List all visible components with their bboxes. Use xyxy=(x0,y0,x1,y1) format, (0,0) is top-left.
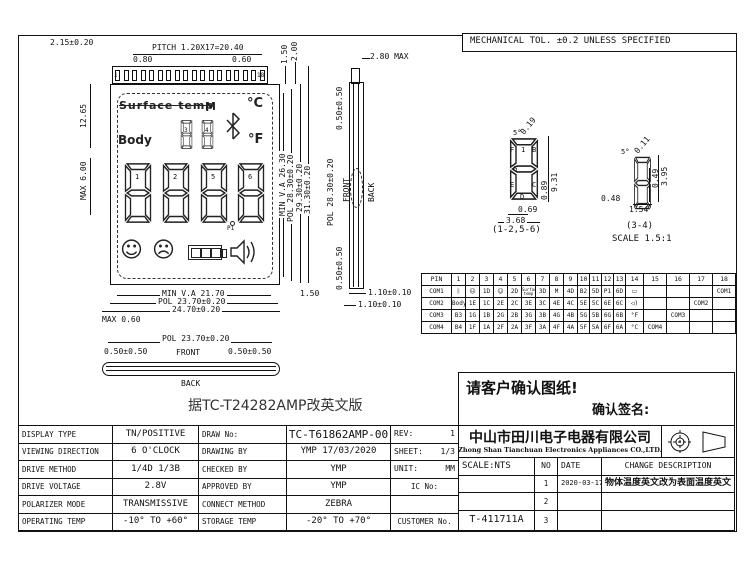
surface-temp-text: Surface temp xyxy=(119,99,214,112)
tb-value: YMP xyxy=(286,460,391,479)
kv: SHEET:1/3 xyxy=(394,448,455,456)
pin-cell xyxy=(644,286,667,298)
connector-pad xyxy=(166,70,171,81)
tb-rev-label: REV: xyxy=(394,430,413,438)
pin-cell: B4 xyxy=(452,322,466,334)
pin-cell: 11 xyxy=(590,274,602,286)
rev-no-cell: 2 xyxy=(534,492,558,511)
segment-letter: 1 xyxy=(521,147,525,155)
connector-pad xyxy=(132,70,137,81)
detail-big-caption: (1-2,5-6) xyxy=(492,226,541,236)
tb-icno-label: IC No: xyxy=(411,483,438,491)
pin-cell: 4C xyxy=(564,298,578,310)
element: PIN123456789101112131415161718COM1ᛒ☹1D☺2… xyxy=(422,274,736,334)
big-digit-6-id: 6 xyxy=(248,173,252,181)
element xyxy=(703,432,725,452)
battery-cell xyxy=(201,248,211,258)
dim-label: 1.50 xyxy=(281,45,290,64)
pin-cell xyxy=(713,310,736,322)
dim-label: 5° xyxy=(621,149,629,157)
dim-label: POL 28.30±0.20 xyxy=(327,159,336,226)
big-digit-2-id: 2 xyxy=(173,173,177,181)
bottom-view-bar xyxy=(102,362,280,376)
dim-label: 24.70±0.20 xyxy=(170,306,222,315)
pin-cell: 3C xyxy=(536,298,550,310)
tb-label: APPROVED BY xyxy=(198,478,287,496)
pin-cell: 5 xyxy=(508,274,522,286)
pin-cell xyxy=(690,286,713,298)
pin-cell: 4D xyxy=(564,286,578,298)
tb-label: CONNECT METHOD xyxy=(198,495,287,514)
tb-sheet-label: SHEET: xyxy=(394,448,423,456)
pin-cell: Body xyxy=(452,298,466,310)
connector-pad xyxy=(243,70,248,81)
pin-cell: 1C xyxy=(480,298,494,310)
pin-cell: 6F xyxy=(602,322,614,334)
pin-cell xyxy=(690,322,713,334)
small-digit-3-id: 3 xyxy=(184,127,188,134)
pin-cell: ☺ xyxy=(494,286,508,298)
company-name-cn: 中山市田川电子电器有限公司 xyxy=(469,430,651,447)
pin-cell: 3D xyxy=(536,286,550,298)
connector-pad xyxy=(234,70,239,81)
segment-letter: C xyxy=(532,182,536,190)
company-name-cell: 中山市田川电子电器有限公司 Zhong Shan Tianchuan Elect… xyxy=(458,425,662,458)
bluetooth-icon xyxy=(224,112,242,140)
pin-cell: 14 xyxy=(626,274,644,286)
scale-cell: SCALE:NTS xyxy=(458,457,535,476)
pin-cell: 4E xyxy=(550,298,564,310)
pin-cell: 3E xyxy=(522,298,536,310)
connector-pad xyxy=(124,70,129,81)
pin-cell: 6C xyxy=(614,298,626,310)
pin-cell: 3 xyxy=(480,274,494,286)
pin-cell: B2 xyxy=(578,286,590,298)
tb-value: YMP xyxy=(286,478,391,496)
com-label-cell: COM4 xyxy=(422,322,452,334)
pin-cell: 18 xyxy=(713,274,736,286)
rev-no-cell: 3 xyxy=(534,510,558,531)
tb-label: DRAW No: xyxy=(198,425,287,444)
bottom-back-label: BACK xyxy=(181,380,200,389)
dim-label: MAX 0.60 xyxy=(102,316,141,325)
dim-label: 1.50 xyxy=(300,290,319,299)
center-note: 据TC-T24282AMP改英文版 xyxy=(188,399,362,414)
connector-pad xyxy=(226,70,231,81)
pin-table-row: COM3B31G1B2G2B3G3B4G4B5G5B6G6B°FCOM3 xyxy=(422,310,736,322)
tb-sheet-cell: SHEET:1/3 xyxy=(390,443,459,461)
tb-customer-label: CUSTOMER No. xyxy=(397,518,451,526)
third-angle-projection-icon xyxy=(667,429,729,455)
pin-cell: 4B xyxy=(564,310,578,322)
tb-value: 2.8V xyxy=(112,478,199,496)
pin-cell: 6E xyxy=(602,298,614,310)
dim-line xyxy=(90,158,91,215)
pin-table: PIN123456789101112131415161718COM1ᛒ☹1D☺2… xyxy=(421,273,736,334)
pin-cell: P1 xyxy=(602,286,614,298)
zebra-connector-ellipse xyxy=(350,168,363,208)
small-digit-3 xyxy=(180,119,193,150)
pin-cell: Surface temp xyxy=(522,286,536,298)
com-label-cell: COM2 xyxy=(422,298,452,310)
pin-cell: 6G xyxy=(602,310,614,322)
tb-value: TN/POSITIVE xyxy=(112,425,199,444)
dim-label: 3.95 xyxy=(661,167,670,186)
tb-customer-label-cell: CUSTOMER No. xyxy=(390,513,459,531)
tb-label: DRIVE VOLTAGE xyxy=(18,478,113,496)
tb-sheet-value: 1/3 xyxy=(441,448,455,456)
dim-label: 2.00 xyxy=(291,42,300,61)
dim-label: PITCH 1.20X17=20.40 xyxy=(152,44,244,53)
pin-cell: 2C xyxy=(508,298,522,310)
detail-small-caption: (3-4) xyxy=(626,222,653,232)
pin-cell: B3 xyxy=(452,310,466,322)
pin-cell: 7 xyxy=(536,274,550,286)
dim-line xyxy=(285,66,286,84)
pin-cell: 16 xyxy=(667,274,690,286)
rev-date-header: DATE xyxy=(557,457,602,476)
pin-strip xyxy=(112,66,268,84)
tb-empty-cell xyxy=(390,495,459,514)
tb-rev-cell: REV:1 xyxy=(390,425,459,444)
pin-cell: 1E xyxy=(466,298,480,310)
pin-cell: 6D xyxy=(614,286,626,298)
big-digit-1 xyxy=(123,161,153,225)
segment-letter: D xyxy=(520,194,524,202)
battery-cell xyxy=(191,248,201,258)
tb-label: DRAWING BY xyxy=(198,443,287,461)
connector-pad xyxy=(175,70,180,81)
connector-pad xyxy=(200,70,205,81)
pin-cell xyxy=(644,298,667,310)
dim-label: MAX 6.00 xyxy=(80,161,89,200)
dim-line xyxy=(658,155,659,202)
small-digit-4 xyxy=(201,119,214,150)
pin-cell: 1G xyxy=(466,310,480,322)
battery-cell xyxy=(211,248,221,258)
element xyxy=(231,241,244,263)
small-digit-4-id: 4 xyxy=(205,127,209,134)
pin-cell xyxy=(644,310,667,322)
tb-label: STORAGE TEMP xyxy=(198,513,287,531)
pin-cell: COM3 xyxy=(667,310,690,322)
pin-cell: 5B xyxy=(590,310,602,322)
deg-c-indicator: °C xyxy=(247,96,263,111)
dim-label: 2.80 MAX xyxy=(370,53,409,62)
pin-cell: 8 xyxy=(550,274,564,286)
dim-label: 1.10±0.10 xyxy=(358,301,401,310)
pin-cell xyxy=(667,322,690,334)
pin-cell: 5G xyxy=(578,310,590,322)
connector-pad xyxy=(209,70,214,81)
pin-cell: 5E xyxy=(578,298,590,310)
pin-cell: 3B xyxy=(536,310,550,322)
pin-cell: 17 xyxy=(690,274,713,286)
pin-cell: 2E xyxy=(494,298,508,310)
customer-no-value-cell: T-411711A xyxy=(458,510,535,531)
rev-desc-cell xyxy=(601,510,735,531)
connector-pad xyxy=(183,70,188,81)
pin-cell: 15 xyxy=(644,274,667,286)
dim-label: 0.69 xyxy=(518,206,537,215)
pin-cell: 1 xyxy=(452,274,466,286)
pin-cell: 5F xyxy=(578,322,590,334)
rev-desc-cell: 物体温度英文改为表面温度英文 xyxy=(601,475,735,493)
dim-label: 0.50±0.50 xyxy=(228,348,271,357)
pin-table-row: COM2Body1E1C2E2C3E3C4E4C5E5C6E6C◁)COM2 xyxy=(422,298,736,310)
pin-cell: 1A xyxy=(480,322,494,334)
tb-unit-cell: UNIT:MM xyxy=(390,460,459,479)
tb-label: OPERATING TEMP xyxy=(18,513,113,531)
pin-cell: 9 xyxy=(564,274,578,286)
com-label-cell: COM3 xyxy=(422,310,452,322)
dim-label: 1.54 xyxy=(629,206,648,215)
element xyxy=(202,120,213,148)
bottom-view-layer-line xyxy=(106,366,276,367)
dim-line xyxy=(649,168,650,202)
tb-value: 6 O'CLOCK xyxy=(112,443,199,461)
element xyxy=(247,242,254,262)
tb-label: CHECKED BY xyxy=(198,460,287,479)
segment-letter: G xyxy=(513,166,517,174)
connector-pad xyxy=(141,70,146,81)
pin-cell: ☹ xyxy=(466,286,480,298)
dim-label: 9.31 xyxy=(551,173,560,192)
pin-cell: 13 xyxy=(614,274,626,286)
pin-cell xyxy=(667,286,690,298)
dim-label: 0.89 xyxy=(541,181,550,200)
pin-cell: 2D xyxy=(508,286,522,298)
pin-cell: COM2 xyxy=(690,298,713,310)
tb-label: DISPLAY TYPE xyxy=(18,425,113,444)
tb-value: -10° TO +60° xyxy=(112,513,199,531)
battery-icon xyxy=(188,245,222,260)
pin-cell: 6 xyxy=(522,274,536,286)
pin-cell: 6B xyxy=(614,310,626,322)
pin-cell xyxy=(713,322,736,334)
battery-terminal xyxy=(222,249,227,258)
pin-first-label: 1 xyxy=(114,73,118,80)
dim-label: 0.50±0.50 xyxy=(336,87,345,130)
rev-desc-header: CHANGE DESCRIPTION xyxy=(601,457,735,476)
pin-cell: COM4 xyxy=(644,322,667,334)
dim-label: 0.80 xyxy=(133,56,152,65)
rev-no-cell: 1 xyxy=(534,475,558,493)
rev-blank-cell xyxy=(458,475,535,493)
pin-cell: 3G xyxy=(522,310,536,322)
tb-unit-label: UNIT: xyxy=(394,465,418,473)
big-digit-6 xyxy=(236,161,266,225)
tb-drawing-number: TC-T61862AMP-00 xyxy=(286,425,391,444)
tb-value: -20° TO +70° xyxy=(286,513,391,531)
pin-cell: 12 xyxy=(602,274,614,286)
pin-cell: COM1 xyxy=(713,286,736,298)
big-digit-1-id: 1 xyxy=(135,173,139,181)
pin-cell xyxy=(713,298,736,310)
segment-letter: E xyxy=(510,182,514,190)
pin-cell: 5A xyxy=(590,322,602,334)
tb-label: DRIVE METHOD xyxy=(18,460,113,479)
dim-label: 1.10±0.10 xyxy=(368,289,411,298)
big-digit-2 xyxy=(161,161,191,225)
pin-cell: 5C xyxy=(590,298,602,310)
kv: REV:1 xyxy=(394,430,455,438)
detail-scale-note: SCALE 1.5:1 xyxy=(612,235,672,245)
pin-table-row: COM1ᛒ☹1D☺2DSurface temp3DM4DB25DP16D▭COM… xyxy=(422,286,736,298)
connector-pad xyxy=(217,70,222,81)
confirm-signature-label: 确认签名: xyxy=(592,404,649,418)
side-back-label: BACK xyxy=(368,183,377,202)
tb-rev-value: 1 xyxy=(450,430,455,438)
element xyxy=(227,113,239,139)
dim-label: 0.60 xyxy=(232,56,251,65)
kv: UNIT:MM xyxy=(394,465,455,473)
connector-pad xyxy=(251,70,256,81)
pin-last-label: 18 xyxy=(257,73,264,80)
body-text: Body xyxy=(118,133,152,147)
dim-label: 0.50±0.50 xyxy=(104,348,147,357)
pin-cell: 6A xyxy=(614,322,626,334)
dim-line xyxy=(349,293,366,294)
element xyxy=(181,120,192,148)
pin-table-header-row: PIN123456789101112131415161718 xyxy=(422,274,736,286)
pin-cell: °F xyxy=(626,310,644,322)
tb-unit-value: MM xyxy=(445,465,455,473)
bottom-front-label: FRONT xyxy=(176,349,200,358)
pin-cell: 2G xyxy=(494,310,508,322)
rev-no-header: NO xyxy=(534,457,558,476)
rev-date-cell: 2020-03-17 xyxy=(557,475,602,493)
pin-cell xyxy=(690,310,713,322)
drawing-sheet: MECHANICAL TOL. ±0.2 UNLESS SPECIFIED 1 … xyxy=(0,0,750,569)
segment-letter: B xyxy=(532,147,536,155)
pin-cell: 4G xyxy=(550,310,564,322)
pin-cell xyxy=(667,298,690,310)
pin-table-row: COM4B41F1A2F2A3F3A4F4A5F5A6F6A°CCOM4 xyxy=(422,322,736,334)
pin-cell: 2A xyxy=(508,322,522,334)
smiley-icon: ☺ xyxy=(120,238,143,263)
pin-cell: 2 xyxy=(466,274,480,286)
rev-blank-cell xyxy=(458,492,535,511)
speaker-icon xyxy=(229,238,257,266)
pin-cell: ◁) xyxy=(626,298,644,310)
tb-value: TRANSMISSIVE xyxy=(112,495,199,514)
pin-cell: 5D xyxy=(590,286,602,298)
pin-cell: 3F xyxy=(522,322,536,334)
rev-date-cell xyxy=(557,510,602,531)
pin-cell: 4A xyxy=(564,322,578,334)
connector-pad xyxy=(158,70,163,81)
pin-header-cell: PIN xyxy=(422,274,452,286)
dim-label: 2.15±0.20 xyxy=(50,39,93,48)
pin-cell: ▭ xyxy=(626,286,644,298)
side-view-pin-tab xyxy=(351,68,360,84)
sad-face-icon: ☹ xyxy=(152,238,175,263)
pin-cell: ᛒ xyxy=(452,286,466,298)
rev-desc-cell xyxy=(601,492,735,511)
pin-cell: 4F xyxy=(550,322,564,334)
m-indicator: M xyxy=(205,100,216,113)
pin-cell: 1B xyxy=(480,310,494,322)
dim-line xyxy=(344,305,356,306)
side-front-label: FRONT xyxy=(343,178,352,202)
rev-date-cell xyxy=(557,492,602,511)
dim-line xyxy=(295,62,296,84)
tb-label: VIEWING DIRECTION xyxy=(18,443,113,461)
connector-pad xyxy=(149,70,154,81)
dim-line xyxy=(90,84,91,148)
pin-cell: 3A xyxy=(536,322,550,334)
pin-cell: 4 xyxy=(494,274,508,286)
p1-label: P1 xyxy=(227,226,234,233)
com-label-cell: COM1 xyxy=(422,286,452,298)
pin-cell: 1D xyxy=(480,286,494,298)
bottom-view-layer-line xyxy=(106,370,276,371)
tolerance-note: MECHANICAL TOL. ±0.2 UNLESS SPECIFIED xyxy=(470,37,670,47)
projection-symbol-cell xyxy=(661,425,735,458)
big-digit-5-id: 5 xyxy=(211,173,215,181)
dim-label: POL 23.70±0.20 xyxy=(160,335,231,344)
dim-label: 31.30±0.20 xyxy=(304,164,313,216)
dim-line xyxy=(362,58,370,59)
segment-letter: F xyxy=(510,147,514,155)
dim-label: 0.48 xyxy=(601,195,620,204)
company-name-en: Zhong Shan Tianchuan Electronics Applian… xyxy=(458,447,662,454)
dim-label: 5° xyxy=(513,130,521,138)
pin-cell: 10 xyxy=(578,274,590,286)
pin-cell: 1F xyxy=(466,322,480,334)
pin-cell: °C xyxy=(626,322,644,334)
confirm-message: 请客户确认图纸! xyxy=(466,380,578,397)
tb-icno-cell: IC No: xyxy=(390,478,459,496)
connector-pad xyxy=(192,70,197,81)
deg-f-indicator: °F xyxy=(248,132,263,147)
big-digit-5 xyxy=(199,161,229,225)
pin-cell: M xyxy=(550,286,564,298)
tb-value: ZEBRA xyxy=(286,495,391,514)
dim-label: 0.50±0.50 xyxy=(336,247,345,290)
tb-value: 1/4D 1/3B xyxy=(112,460,199,479)
dim-label: 12.65 xyxy=(80,104,89,128)
tb-label: POLARIZER MODE xyxy=(18,495,113,514)
tb-value: YMP 17/03/2020 xyxy=(286,443,391,461)
pin-cell: 2F xyxy=(494,322,508,334)
pin-cell: 2B xyxy=(508,310,522,322)
